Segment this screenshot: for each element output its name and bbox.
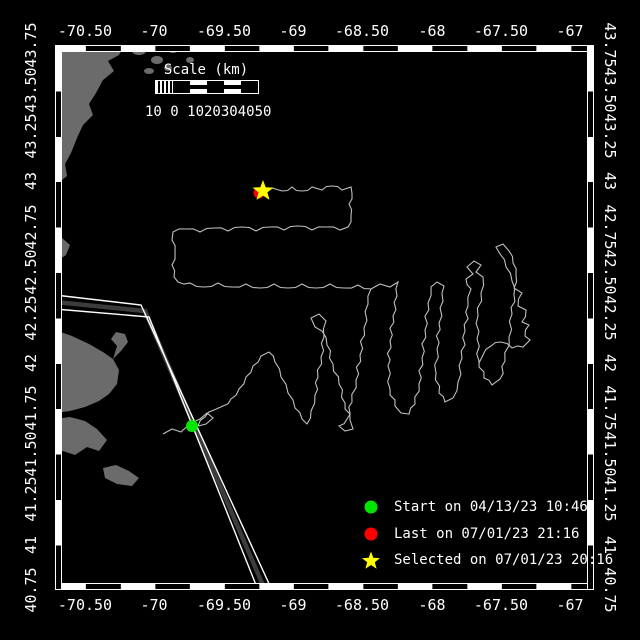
- axis-label-lat-left: 42.75: [22, 204, 40, 249]
- scale-bar-hatch-segment: [156, 81, 173, 93]
- axis-label-lat-left: 42.25: [22, 295, 40, 340]
- axis-label-lon-bottom: -70.50: [58, 596, 112, 614]
- axis-label-lat-right: 41.25: [601, 476, 619, 521]
- legend-star-icon: [360, 549, 382, 571]
- axis-label-lon-bottom: -68: [418, 596, 445, 614]
- axis-label-lon-top: -70.50: [58, 22, 112, 40]
- axis-label-lat-left: 43.75: [22, 22, 40, 67]
- axis-label-lon-bottom: -67.50: [474, 596, 528, 614]
- legend-label: Start on 04/13/23 10:46: [394, 499, 588, 515]
- axis-label-lat-right: 42.75: [601, 204, 619, 249]
- scale-bar-numbers: 10 0 1020304050: [145, 104, 271, 120]
- axis-label-lat-right: 40.75: [601, 567, 619, 612]
- axis-label-lon-top: -69: [279, 22, 306, 40]
- axis-label-lon-bottom: -68.50: [335, 596, 389, 614]
- legend-row: Start on 04/13/23 10:46: [360, 496, 588, 518]
- axis-label-lon-top: -68: [418, 22, 445, 40]
- axis-label-lat-left: 43.25: [22, 113, 40, 158]
- frame-border-top: [55, 45, 594, 52]
- axis-label-lat-left: 41.25: [22, 476, 40, 521]
- glider-track[interactable]: [371, 244, 530, 414]
- axis-label-lon-bottom: -69: [279, 596, 306, 614]
- legend-row: Selected on 07/01/23 20:16: [360, 549, 613, 571]
- legend-label: Selected on 07/01/23 20:16: [394, 552, 613, 568]
- axis-label-lat-right: 42: [601, 354, 619, 372]
- glider-track[interactable]: [163, 186, 371, 434]
- axis-label-lat-right: 41: [601, 536, 619, 554]
- axis-label-lat-right: 42.50: [601, 249, 619, 294]
- axis-label-lon-top: -68.50: [335, 22, 389, 40]
- axis-label-lat-right: 43.75: [601, 22, 619, 67]
- axis-label-lon-top: -67: [556, 22, 583, 40]
- axis-label-lat-left: 41.50: [22, 431, 40, 476]
- legend-label: Last on 07/01/23 21:16: [394, 526, 579, 542]
- axis-label-lat-right: 43.25: [601, 113, 619, 158]
- frame-border-bottom: [55, 583, 594, 590]
- axis-label-lon-bottom: -67: [556, 596, 583, 614]
- axis-label-lat-right: 41.75: [601, 385, 619, 430]
- axis-label-lat-left: 40.75: [22, 567, 40, 612]
- track-map-viewer: Scale (km) 10 0 1020304050 Start on 04/1…: [0, 0, 640, 640]
- axis-label-lat-right: 43.50: [601, 67, 619, 112]
- axis-label-lon-bottom: -69.50: [197, 596, 251, 614]
- legend-dot-icon: [360, 523, 382, 545]
- landmass-cape-cod: [55, 417, 107, 455]
- scale-bar: [155, 80, 259, 94]
- axis-label-lat-right: 43: [601, 172, 619, 190]
- frame-border-left: [55, 45, 62, 590]
- axis-label-lat-left: 41: [22, 536, 40, 554]
- landmass-cape-cod: [103, 465, 139, 486]
- axis-label-lat-right: 42.25: [601, 295, 619, 340]
- start-marker[interactable]: [186, 420, 198, 432]
- axis-label-lon-bottom: -70: [140, 596, 167, 614]
- axis-label-lon-top: -70: [140, 22, 167, 40]
- axis-label-lon-top: -67.50: [474, 22, 528, 40]
- axis-label-lon-top: -69.50: [197, 22, 251, 40]
- land-speckle: [144, 68, 154, 74]
- landmass-cape-cod: [55, 45, 124, 184]
- axis-label-lat-left: 43: [22, 172, 40, 190]
- axis-label-lat-left: 41.75: [22, 385, 40, 430]
- axis-label-lat-left: 42: [22, 354, 40, 372]
- legend-row: Last on 07/01/23 21:16: [360, 523, 579, 545]
- axis-label-lat-right: 41.50: [601, 431, 619, 476]
- frame-border-right: [587, 45, 594, 590]
- legend-dot-icon: [360, 496, 382, 518]
- scale-bar-title: Scale (km): [156, 62, 256, 78]
- axis-label-lat-left: 42.50: [22, 249, 40, 294]
- landmass-cape-cod: [55, 330, 128, 413]
- axis-label-lat-left: 43.50: [22, 67, 40, 112]
